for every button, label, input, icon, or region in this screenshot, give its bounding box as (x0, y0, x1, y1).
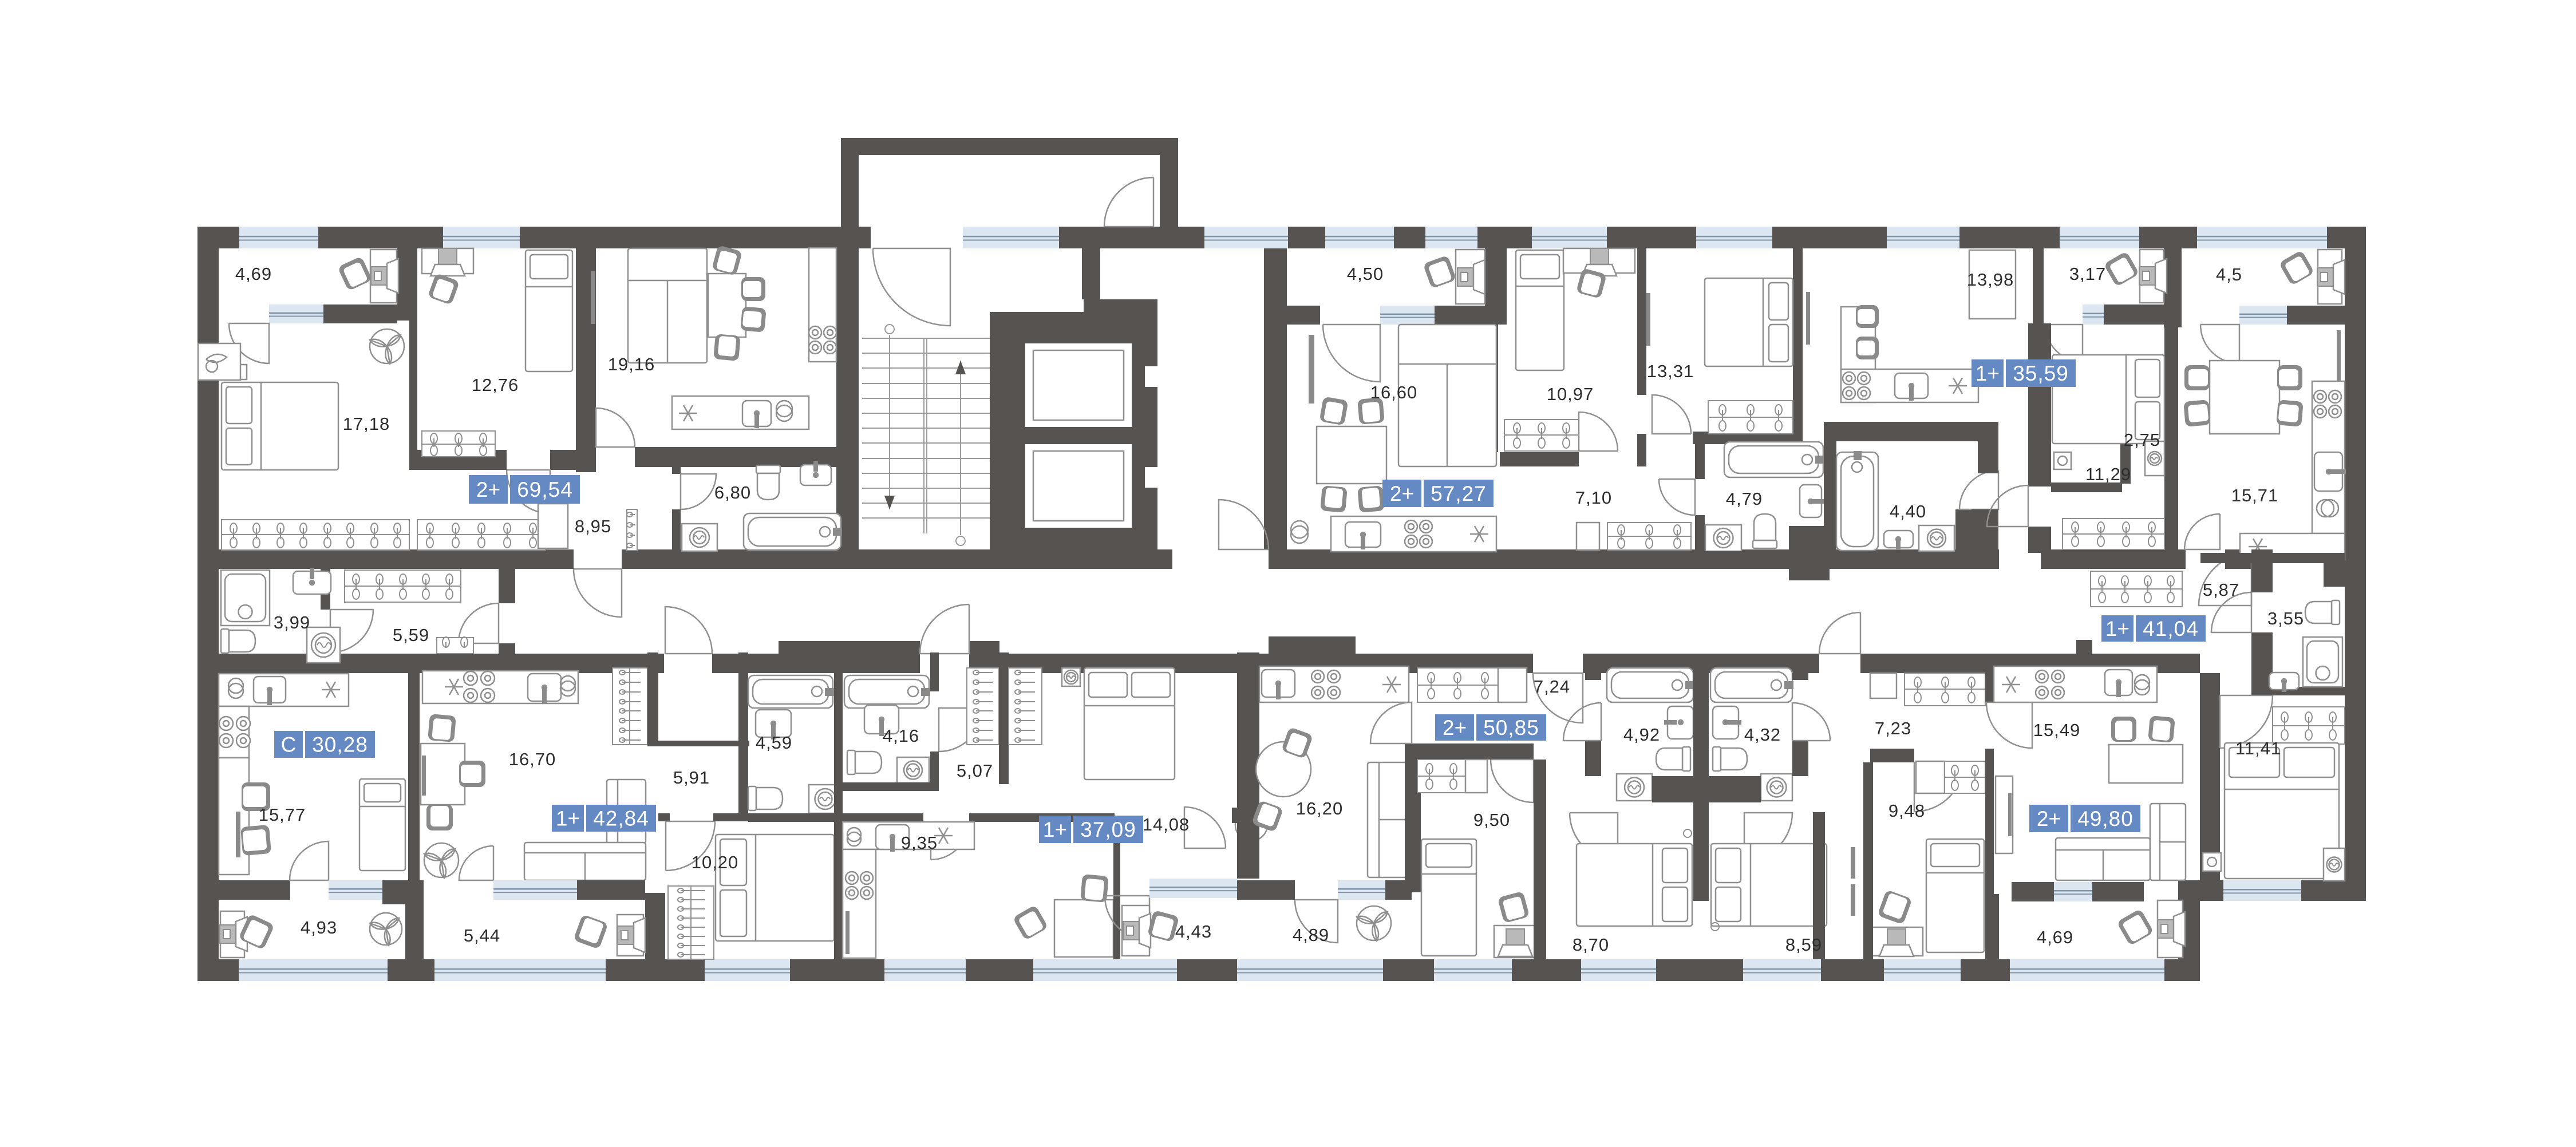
svg-text:8,95: 8,95 (575, 516, 611, 536)
svg-text:1+: 1+ (556, 807, 580, 830)
svg-text:15,71: 15,71 (2231, 485, 2279, 505)
svg-text:13,98: 13,98 (1967, 270, 2014, 290)
svg-text:4,5: 4,5 (2216, 264, 2242, 284)
svg-text:4,40: 4,40 (1890, 501, 1926, 521)
svg-text:2,75: 2,75 (2124, 430, 2160, 450)
svg-text:37,09: 37,09 (1080, 818, 1136, 841)
svg-text:50,85: 50,85 (1483, 716, 1539, 739)
svg-text:4,92: 4,92 (1623, 725, 1660, 745)
svg-text:6,80: 6,80 (714, 482, 751, 503)
svg-text:4,43: 4,43 (1175, 921, 1212, 942)
svg-text:14,08: 14,08 (1143, 814, 1190, 834)
svg-text:16,70: 16,70 (509, 749, 556, 769)
svg-text:3,55: 3,55 (2267, 608, 2304, 628)
svg-text:16,60: 16,60 (1370, 382, 1418, 402)
svg-text:4,16: 4,16 (883, 726, 919, 746)
svg-text:49,80: 49,80 (2077, 807, 2134, 830)
svg-text:15,77: 15,77 (259, 805, 306, 825)
svg-text:4,89: 4,89 (1293, 925, 1329, 945)
svg-text:2+: 2+ (1390, 482, 1414, 505)
svg-text:1+: 1+ (1976, 362, 2000, 385)
svg-text:4,93: 4,93 (301, 917, 337, 938)
svg-text:5,44: 5,44 (464, 925, 500, 946)
svg-text:41,04: 41,04 (2143, 617, 2199, 640)
svg-text:8,59: 8,59 (1785, 935, 1822, 955)
svg-text:10,97: 10,97 (1547, 384, 1594, 404)
svg-text:5,07: 5,07 (957, 761, 993, 781)
svg-text:2+: 2+ (1443, 716, 1467, 739)
svg-text:16,20: 16,20 (1296, 798, 1344, 818)
svg-text:7,23: 7,23 (1875, 718, 1911, 738)
svg-text:11,29: 11,29 (2085, 464, 2131, 484)
svg-text:11,41: 11,41 (2235, 738, 2281, 758)
svg-text:1+: 1+ (2105, 617, 2129, 640)
svg-text:4,69: 4,69 (235, 264, 272, 284)
svg-text:4,50: 4,50 (1347, 264, 1384, 284)
svg-text:35,59: 35,59 (2013, 362, 2069, 385)
svg-text:4,32: 4,32 (1744, 725, 1781, 745)
svg-text:5,91: 5,91 (673, 768, 710, 788)
svg-text:5,87: 5,87 (2203, 580, 2239, 600)
svg-text:9,50: 9,50 (1473, 810, 1510, 830)
svg-text:C: C (281, 733, 297, 757)
svg-text:17,18: 17,18 (343, 414, 390, 434)
svg-text:10,20: 10,20 (692, 852, 739, 872)
svg-text:69,54: 69,54 (517, 478, 573, 501)
svg-text:3,17: 3,17 (2069, 264, 2106, 284)
svg-text:9,48: 9,48 (1888, 801, 1925, 821)
svg-text:4,79: 4,79 (1726, 489, 1763, 509)
svg-text:30,28: 30,28 (312, 733, 368, 757)
svg-text:2+: 2+ (476, 478, 500, 501)
svg-text:7,10: 7,10 (1575, 488, 1612, 508)
svg-text:57,27: 57,27 (1431, 482, 1487, 505)
svg-text:8,70: 8,70 (1573, 935, 1609, 955)
svg-text:4,69: 4,69 (2037, 927, 2073, 947)
svg-text:12,76: 12,76 (472, 375, 519, 395)
svg-text:3,99: 3,99 (274, 612, 310, 632)
svg-text:7,24: 7,24 (1534, 677, 1570, 697)
svg-text:1+: 1+ (1043, 818, 1067, 841)
svg-text:42,84: 42,84 (593, 807, 649, 830)
svg-text:15,49: 15,49 (2033, 720, 2081, 740)
svg-text:13,31: 13,31 (1647, 361, 1694, 381)
svg-text:5,59: 5,59 (393, 625, 429, 645)
svg-text:19,16: 19,16 (608, 354, 655, 374)
svg-text:4,59: 4,59 (756, 733, 792, 753)
svg-text:9,35: 9,35 (901, 833, 938, 853)
svg-text:2+: 2+ (2037, 807, 2061, 830)
